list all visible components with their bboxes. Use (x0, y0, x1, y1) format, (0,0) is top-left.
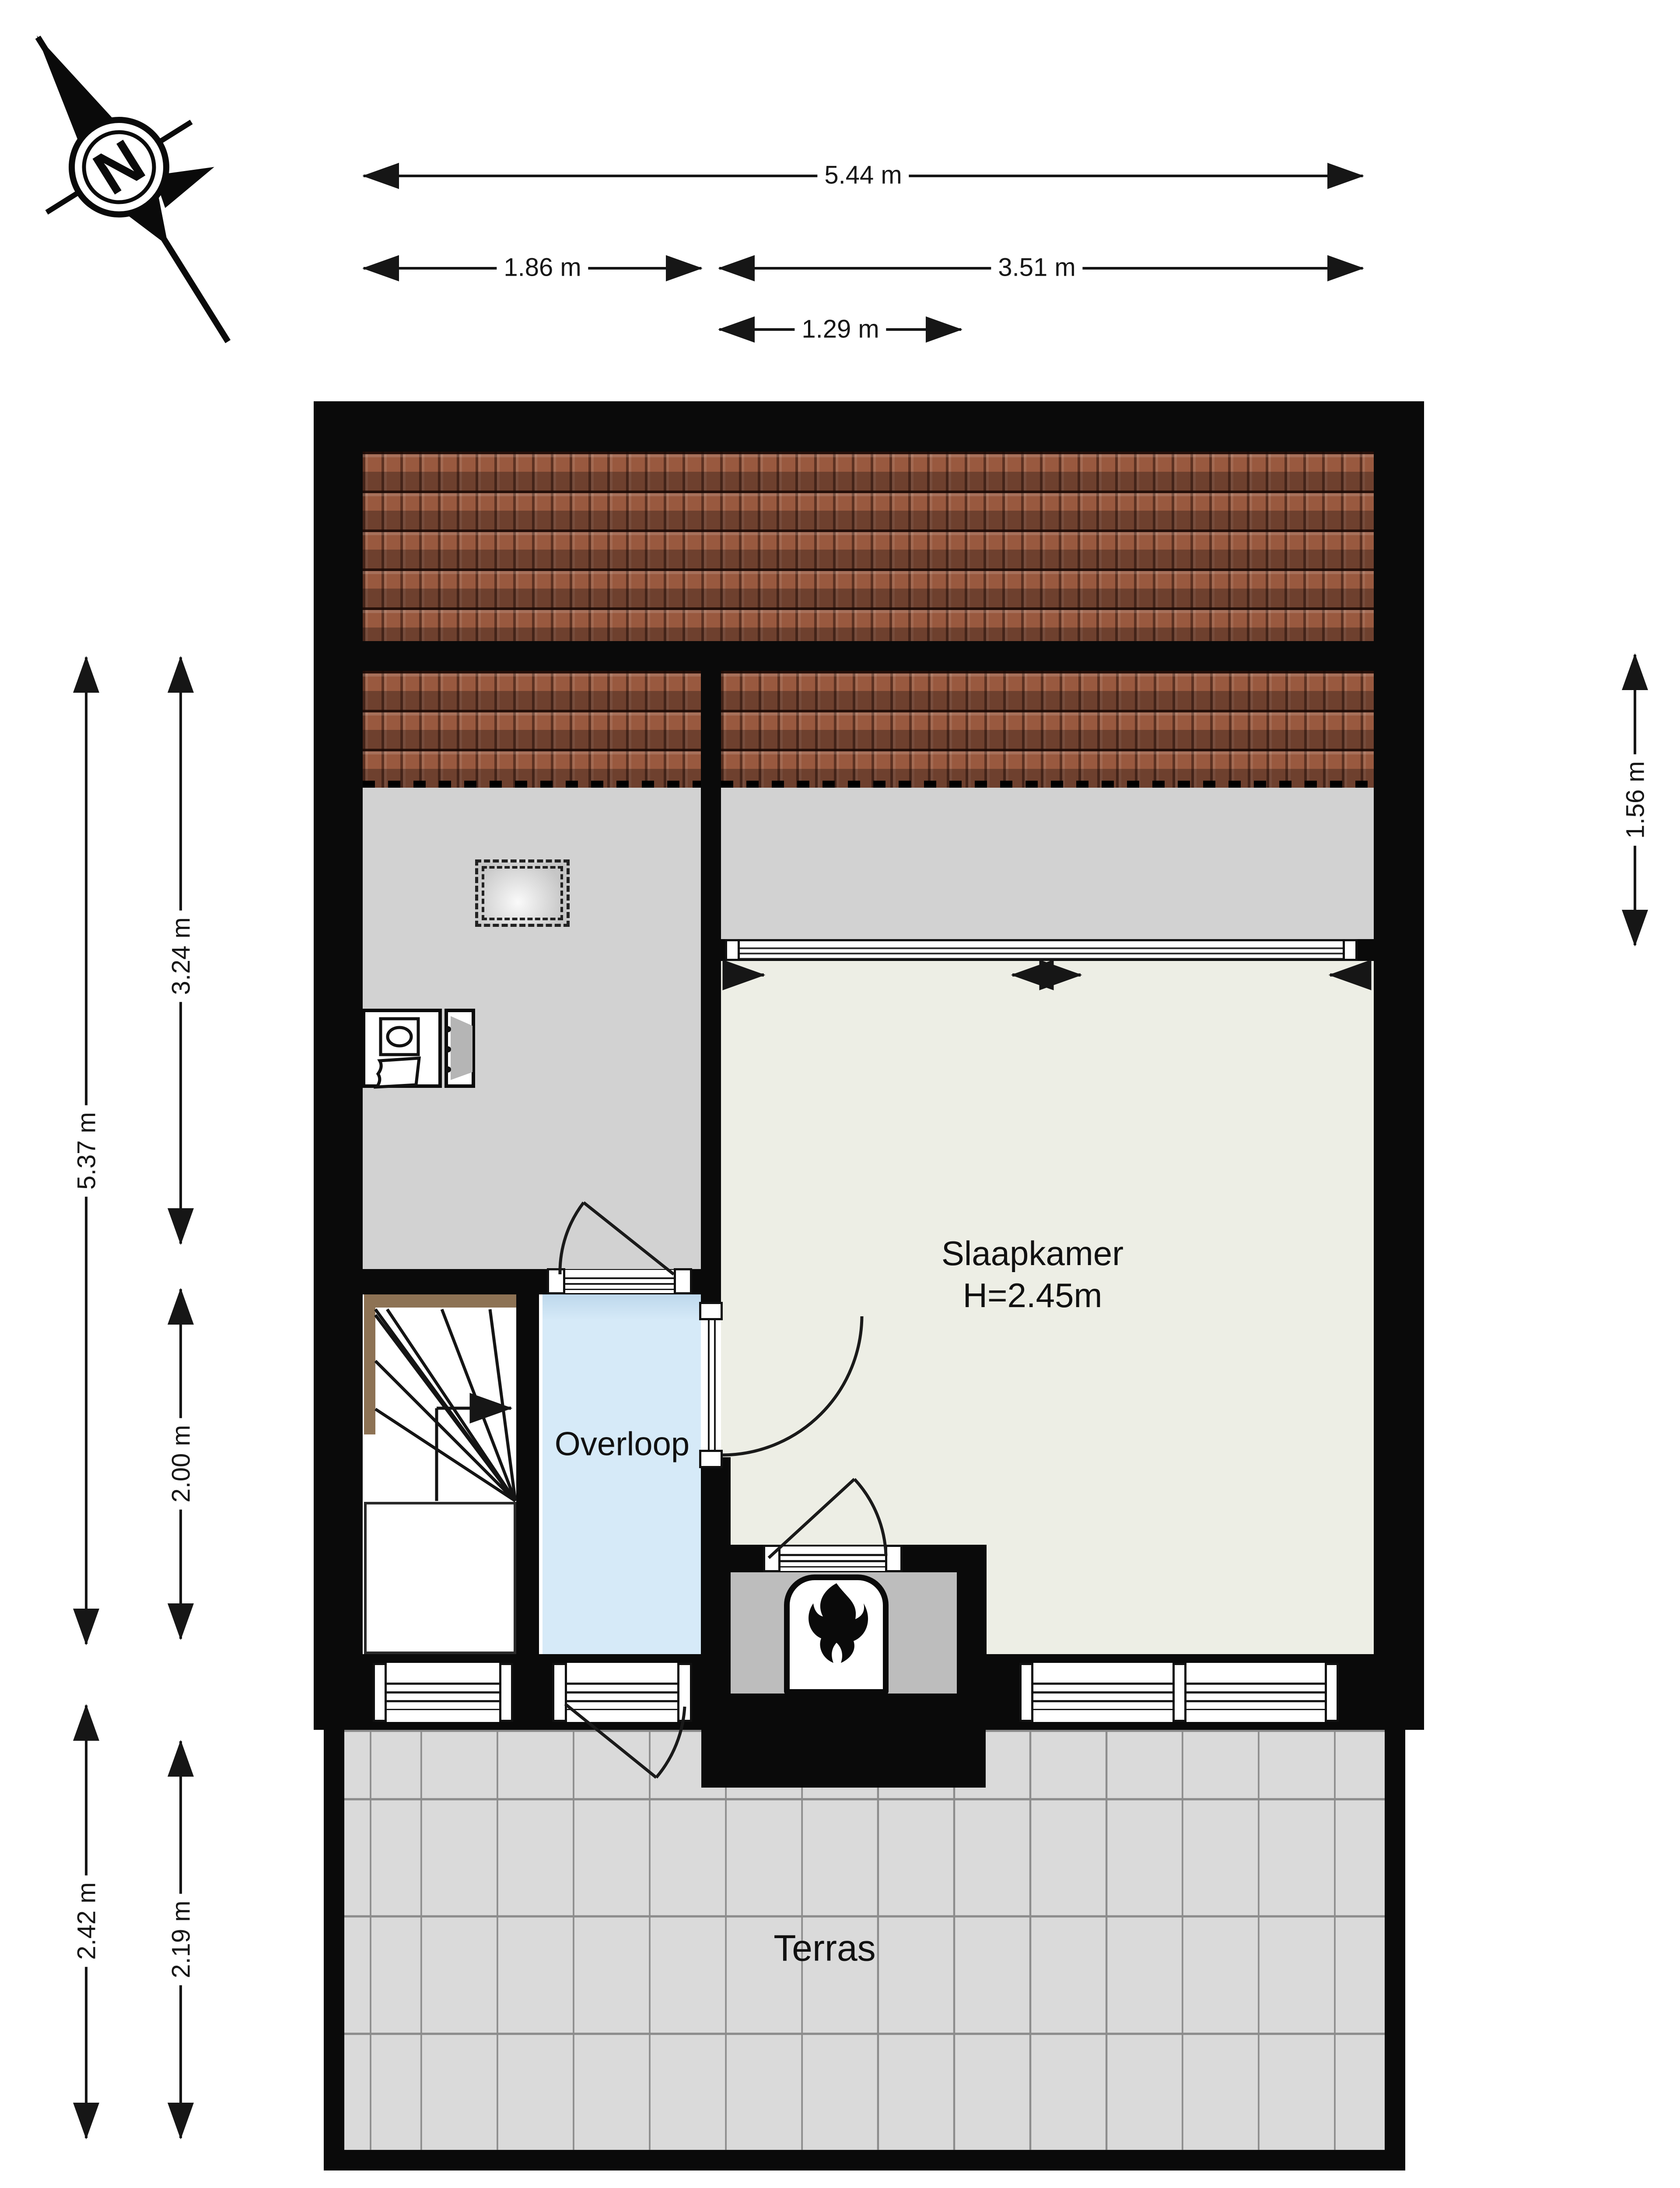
window-bottom-left-jamb-a (373, 1663, 387, 1722)
terrace-wall-left (324, 1730, 344, 2170)
bedroom-knee-window (725, 939, 1358, 961)
skylight (475, 859, 570, 927)
bedroom-knee-strip (721, 788, 1374, 942)
floorplan-page: N (0, 0, 1680, 2188)
roof-tiles-upper (363, 452, 1374, 641)
wall-left (314, 401, 363, 1730)
wall-facade-north (363, 641, 1374, 671)
knee-window-jamb-left (725, 939, 740, 961)
wall-stairs-landing (516, 1294, 539, 1654)
bedroom-door-band (701, 1315, 721, 1455)
small-room-wall-left (701, 1457, 731, 1696)
terrace-door-jamb-left (552, 1663, 567, 1722)
terrace-wall-right (1385, 1730, 1405, 2170)
dim-label-left-inner-upper: 3.24 m (167, 910, 196, 1002)
window-bedroom-jamb-right (1325, 1663, 1339, 1722)
bedroom-label: Slaapkamer H=2.45m (941, 1232, 1123, 1316)
bedroom-door-jamb-top (699, 1302, 723, 1320)
height-line-left (363, 781, 701, 788)
dim-label-right-side: 1.56 m (1621, 754, 1650, 845)
dim-label-left-inner-mid: 2.00 m (167, 1418, 196, 1509)
wall-right (1374, 401, 1424, 1730)
terrace-door-band (552, 1663, 692, 1722)
window-bottom-left-jamb-b (499, 1663, 513, 1722)
landing-top-door-band (547, 1270, 692, 1293)
small-room-door-band (766, 1546, 900, 1571)
knee-window-stub-right (1356, 939, 1374, 961)
dim-label-left-inner-lower: 2.19 m (167, 1893, 196, 1985)
landing-label: Overloop (555, 1425, 689, 1463)
dim-label-left-outer-lower: 2.42 m (72, 1875, 101, 1967)
void-under-stairs (364, 1502, 516, 1654)
dim-label-top-total: 5.44 m (817, 161, 909, 190)
height-line-bedroom (721, 781, 1374, 788)
small-room-door-jamb-right (885, 1545, 903, 1572)
compass-north-icon: N (0, 0, 300, 387)
window-bedroom-jamb-left (1019, 1663, 1033, 1722)
dim-label-top-right: 3.51 m (991, 253, 1082, 282)
dim-label-top-inner: 1.29 m (794, 315, 886, 344)
washing-machine (362, 1009, 442, 1088)
dim-label-top-left: 1.86 m (497, 253, 588, 282)
landing-top-door-jamb-left (547, 1268, 565, 1294)
svg-text:N: N (82, 126, 156, 208)
terrace-wall-bottom (324, 2150, 1405, 2170)
small-room-door-jamb-left (763, 1545, 780, 1572)
stair-wood-edge-top (364, 1294, 525, 1308)
stair-wood-edge-left (364, 1294, 375, 1434)
small-room-wall-right (957, 1545, 987, 1696)
washing-machine-side-panel (444, 1009, 475, 1088)
dim-label-left-outer-upper: 5.37 m (72, 1105, 101, 1196)
terrace-door-jamb-right (677, 1663, 692, 1722)
roof-tiles-left-room (363, 671, 701, 788)
bedroom-door-jamb-bottom (699, 1450, 723, 1468)
terrace-label: Terras (773, 1927, 875, 1970)
bedroom-label-name: Slaapkamer (941, 1232, 1123, 1274)
chimney-block (701, 1694, 986, 1788)
bedroom-label-height: H=2.45m (941, 1274, 1123, 1316)
roof-tiles-bedroom (721, 671, 1374, 788)
landing-floor (542, 1294, 701, 1654)
window-bottom-left (373, 1663, 513, 1722)
stove-unit (784, 1574, 889, 1695)
landing-top-door-jamb-right (674, 1268, 692, 1294)
knee-window-jamb-right (1343, 939, 1358, 961)
window-bedroom-jamb-mid (1172, 1663, 1186, 1722)
wall-top (314, 401, 1424, 452)
staircase-area (364, 1294, 525, 1502)
